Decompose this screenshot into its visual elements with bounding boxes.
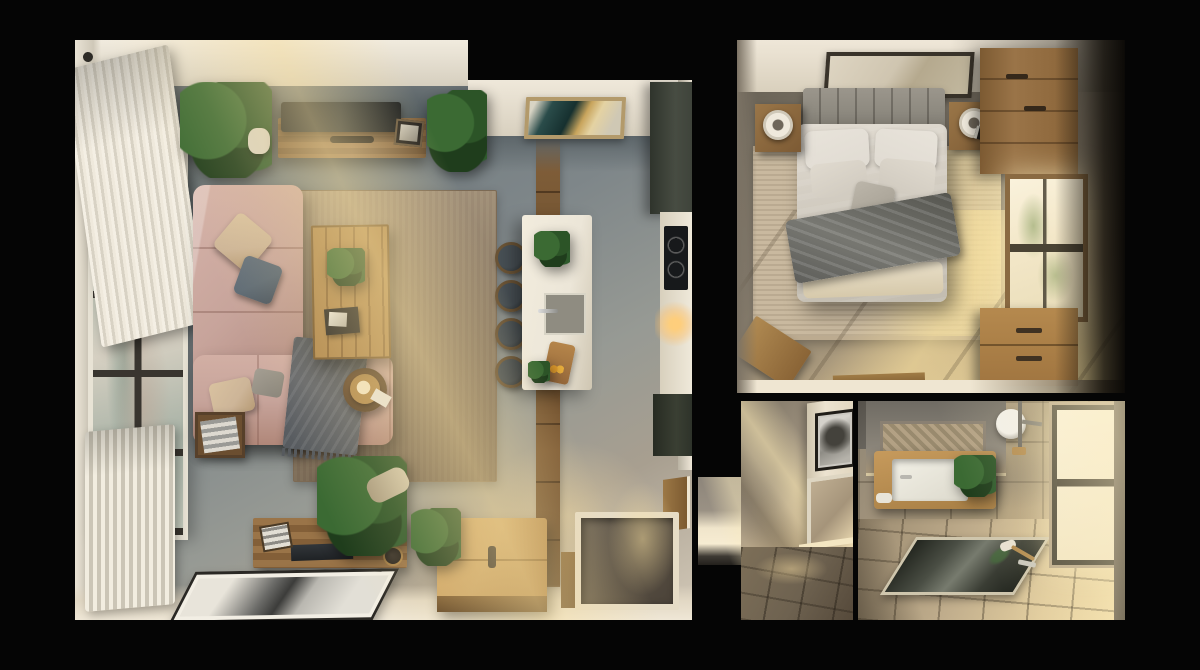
panel-living-kitchen xyxy=(75,40,692,620)
hall-tiled-floor xyxy=(741,547,853,620)
bedroom-left-wall xyxy=(737,40,757,393)
panel-bedroom xyxy=(737,40,1125,393)
bath-sunbeam xyxy=(858,401,1125,620)
panel-hallway xyxy=(741,401,853,620)
apartment-plan-render xyxy=(0,0,1200,670)
ring-lamp-left xyxy=(763,110,793,140)
double-bed xyxy=(797,124,947,302)
framed-photo xyxy=(815,409,853,472)
panel-hallway-flap xyxy=(698,477,741,565)
shadow-vignette xyxy=(1055,40,1125,393)
sunbeam-overlay xyxy=(75,40,692,620)
panel-bathroom xyxy=(858,401,1125,620)
hall-flap-wall xyxy=(698,477,741,565)
